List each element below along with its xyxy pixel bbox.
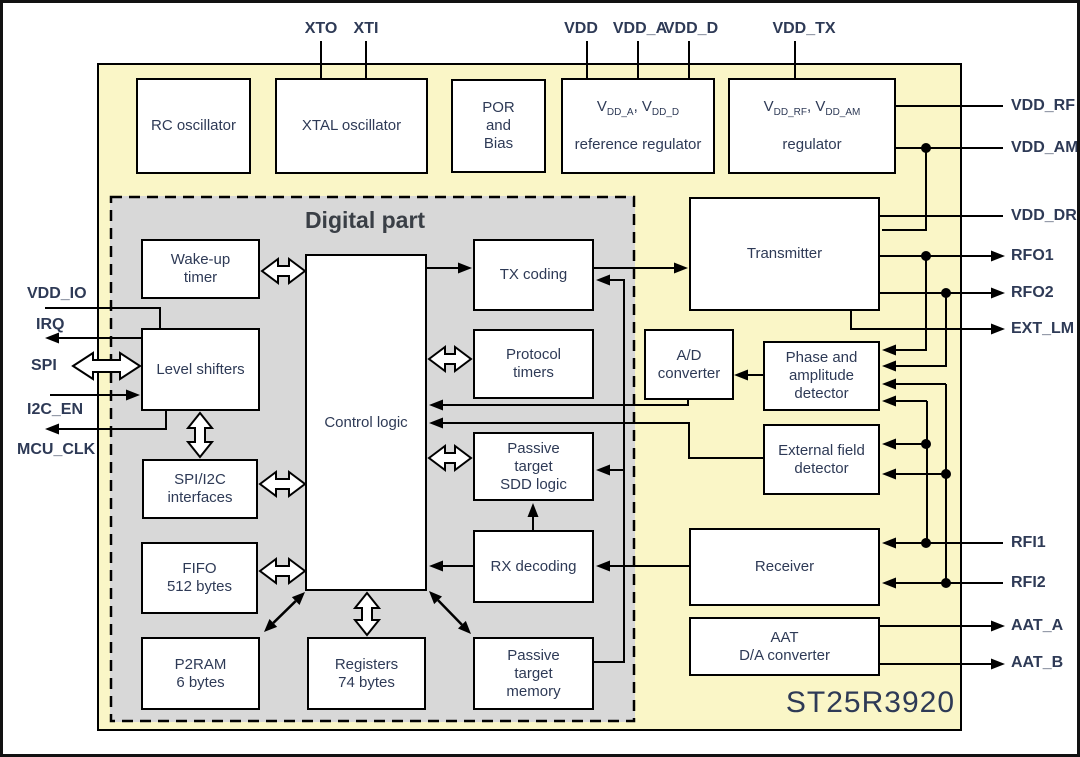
block-label: TX coding [500, 266, 568, 284]
block-label: Transmitter [747, 245, 822, 263]
pin-label-vdd-io: VDD_IO [27, 284, 87, 303]
arrowhead [45, 424, 59, 435]
pin-label-rfi1: RFI1 [1011, 533, 1046, 552]
pin-label-i2c-en: I2C_EN [27, 400, 83, 419]
block-receiver: Receiver [689, 528, 880, 606]
block-label: POR and Bias [482, 99, 515, 153]
pin-label-xto: XTO [305, 19, 338, 38]
arrowhead [991, 621, 1005, 632]
diagram-canvas: RC oscillator XTAL oscillator POR and Bi… [0, 0, 1080, 757]
block-protocol-timers: Protocol timers [473, 329, 594, 399]
block-label: VDD_A, VDD_D reference regulator [575, 80, 702, 172]
block-level-shifters: Level shifters [141, 328, 260, 411]
pin-label-ext-lm: EXT_LM [1011, 319, 1074, 338]
pin-label-vdd-a: VDD_A [613, 19, 667, 38]
block-external-field-detector: External field detector [763, 424, 880, 495]
pin-label-vdd-rf: VDD_RF [1011, 96, 1075, 115]
arrowhead [991, 288, 1005, 299]
pin-label-rfo1: RFO1 [1011, 246, 1054, 265]
block-passive-target-sdd-logic: Passive target SDD logic [473, 432, 594, 501]
block-registers: Registers 74 bytes [307, 637, 426, 710]
regulator-line1: VDD_RF, VDD_AM [764, 98, 861, 118]
block-control-logic: Control logic [305, 254, 427, 591]
block-label: AAT D/A converter [739, 629, 830, 665]
pin-label-vdd-am: VDD_AM [1011, 138, 1079, 157]
pin-label-aat-b: AAT_B [1011, 653, 1063, 672]
pin-label-vdd: VDD [564, 19, 598, 38]
block-aat-da-converter: AAT D/A converter [689, 617, 880, 676]
block-wakeup-timer: Wake-up timer [141, 239, 260, 299]
block-label: Registers 74 bytes [335, 656, 398, 692]
pin-label-spi: SPI [31, 356, 57, 375]
pin-label-vdd-dr: VDD_DR [1011, 206, 1077, 225]
block-label: Passive target SDD logic [500, 440, 567, 494]
pin-label-vdd-d: VDD_D [664, 19, 718, 38]
block-rx-decoding: RX decoding [473, 530, 594, 603]
block-phase-amplitude-detector: Phase and amplitude detector [763, 341, 880, 411]
block-rc-oscillator: RC oscillator [136, 78, 251, 174]
pin-label-irq: IRQ [36, 315, 64, 334]
regulator-line2: reference regulator [575, 136, 702, 154]
arrowhead [991, 324, 1005, 335]
digital-part-title: Digital part [290, 207, 440, 234]
block-label: Level shifters [156, 361, 244, 379]
block-label: Protocol timers [506, 346, 561, 382]
block-label: P2RAM 6 bytes [175, 656, 227, 692]
block-ad-converter: A/D converter [644, 329, 734, 400]
block-label: Wake-up timer [171, 251, 230, 287]
pin-label-aat-a: AAT_A [1011, 616, 1063, 635]
block-label: Receiver [755, 558, 814, 576]
pin-label-rfi2: RFI2 [1011, 573, 1046, 592]
block-rf-regulator: VDD_RF, VDD_AM regulator [728, 78, 896, 174]
pin-label-rfo2: RFO2 [1011, 283, 1054, 302]
pin-label-mcu-clk: MCU_CLK [17, 440, 95, 459]
arrowhead [991, 659, 1005, 670]
arrowhead [991, 251, 1005, 262]
regulator-line1: VDD_A, VDD_D [575, 98, 702, 118]
pin-label-vdd-tx: VDD_TX [772, 19, 835, 38]
block-label: External field detector [778, 442, 865, 478]
block-xtal-oscillator: XTAL oscillator [275, 78, 428, 174]
block-label: XTAL oscillator [302, 117, 401, 135]
chip-name: ST25R3920 [763, 686, 955, 720]
block-label: Phase and amplitude detector [786, 349, 858, 403]
block-p2ram: P2RAM 6 bytes [141, 637, 260, 710]
regulator-line2: regulator [764, 136, 861, 154]
block-transmitter: Transmitter [689, 197, 880, 311]
block-label: RX decoding [491, 558, 577, 576]
block-reference-regulator: VDD_A, VDD_D reference regulator [561, 78, 715, 174]
block-tx-coding: TX coding [473, 239, 594, 311]
block-fifo: FIFO 512 bytes [141, 542, 258, 614]
block-por-bias: POR and Bias [451, 79, 546, 173]
block-label: RC oscillator [151, 117, 236, 135]
block-label: A/D converter [658, 347, 721, 383]
block-spi-i2c-interfaces: SPI/I2C interfaces [142, 459, 258, 519]
block-passive-target-memory: Passive target memory [473, 637, 594, 710]
block-label: Control logic [324, 414, 407, 432]
arrowhead [45, 333, 59, 344]
pin-label-xti: XTI [354, 19, 379, 38]
block-label: SPI/I2C interfaces [167, 471, 232, 507]
block-label: VDD_RF, VDD_AM regulator [764, 80, 861, 172]
block-label: Passive target memory [506, 647, 560, 701]
block-label: FIFO 512 bytes [167, 560, 232, 596]
